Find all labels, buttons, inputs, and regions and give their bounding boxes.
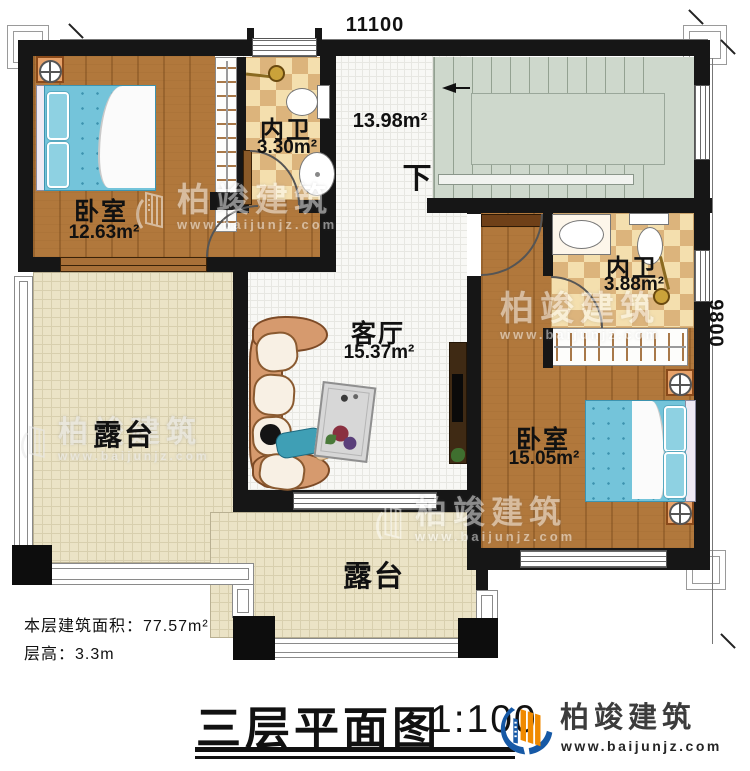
- living-area: 15.37m²: [336, 342, 422, 364]
- brand-logo-icon: [497, 700, 555, 758]
- brand-name: 柏竣建筑: [560, 704, 696, 733]
- wall-bedroom1-bottom-b: [207, 257, 260, 272]
- bedroom1-area: 12.63m²: [58, 222, 150, 244]
- stair-direction-arrow-icon: [442, 83, 456, 93]
- dimension-top-label: 11100: [330, 14, 420, 37]
- wall-bedroom2-bottom-stub: [476, 570, 488, 590]
- stair-void: [471, 93, 665, 165]
- terrace-railing-step: [232, 584, 254, 618]
- plant-icon: [451, 448, 465, 462]
- bed1-pillow: [47, 92, 69, 140]
- floor-height-note: 层高：3.3m: [24, 640, 115, 664]
- window-top-bathroom1: [252, 38, 317, 57]
- wall-top: [18, 40, 710, 56]
- bathroom2-area: 3.88m²: [596, 274, 672, 296]
- stair-direction-label: 下: [400, 155, 436, 197]
- lamp-icon: [39, 60, 62, 83]
- bed2-headboard: [685, 400, 696, 502]
- floor-plan-canvas: 11100 9800: [0, 0, 750, 771]
- staircase: [433, 57, 694, 198]
- window-right-stairs: [694, 85, 710, 160]
- bathroom1-area: 3.30m²: [250, 137, 324, 159]
- dimension-tick: [688, 9, 704, 25]
- floor-area-note: 本层建筑面积：77.57m²: [24, 612, 209, 636]
- window-right-bathroom2: [694, 250, 710, 302]
- nightstand: [666, 498, 694, 525]
- dimension-tick: [68, 23, 84, 39]
- window-living-bottom: [293, 492, 437, 510]
- bed2-pillow: [664, 406, 686, 452]
- bed2-pillow: [664, 452, 686, 498]
- title-underline: [195, 756, 515, 759]
- dimension-tick: [720, 633, 736, 649]
- toilet-tank: [629, 213, 669, 225]
- terrace-front-label: 露台: [338, 553, 410, 595]
- terrace-column: [12, 545, 52, 585]
- wall-wardrobe1-stub: [210, 192, 237, 210]
- wall-living-bedroom2-a: [467, 198, 481, 214]
- wall-terrace-living: [233, 272, 248, 512]
- wall-bedroom1-bottom-a: [18, 257, 60, 272]
- terrace-column: [458, 618, 498, 658]
- stair-handrail: [438, 174, 634, 185]
- window-bedroom2-bottom: [520, 550, 667, 568]
- terrace-column: [233, 616, 275, 660]
- wall-bathroom2-left-b: [543, 328, 553, 368]
- stair-arrow-tail: [455, 87, 470, 89]
- stair-hall-area: 13.98m²: [346, 110, 434, 133]
- sliding-door-bedroom1-terrace: [60, 257, 207, 272]
- bedroom2-area: 15.05m²: [498, 448, 590, 470]
- shower-head-icon: [268, 65, 285, 82]
- sofa-cushion: [252, 373, 297, 418]
- sink-drain: [315, 172, 320, 177]
- toilet-tank: [317, 85, 330, 119]
- title-underline: [195, 747, 515, 752]
- lamp-icon: [669, 373, 692, 396]
- brand-logo: 柏竣建筑 www.baijunjz.com: [497, 698, 733, 760]
- bed1-pillow: [47, 142, 69, 188]
- wardrobe2: [551, 328, 688, 366]
- coffee-table: [314, 381, 377, 463]
- wardrobe2-rod: [554, 346, 686, 348]
- wall-left: [18, 40, 33, 262]
- tv-icon: [452, 374, 463, 422]
- brand-url: www.baijunjz.com: [561, 738, 722, 754]
- lamp-icon: [669, 502, 692, 525]
- bed1-blanket: [98, 86, 155, 188]
- terrace-railing-left: [14, 276, 33, 585]
- wall-bathroom1-bottom-b: [299, 200, 336, 213]
- sink-icon: [559, 220, 604, 249]
- terrace-left-label: 露台: [88, 412, 160, 454]
- nightstand: [36, 56, 64, 83]
- nightstand: [666, 369, 694, 396]
